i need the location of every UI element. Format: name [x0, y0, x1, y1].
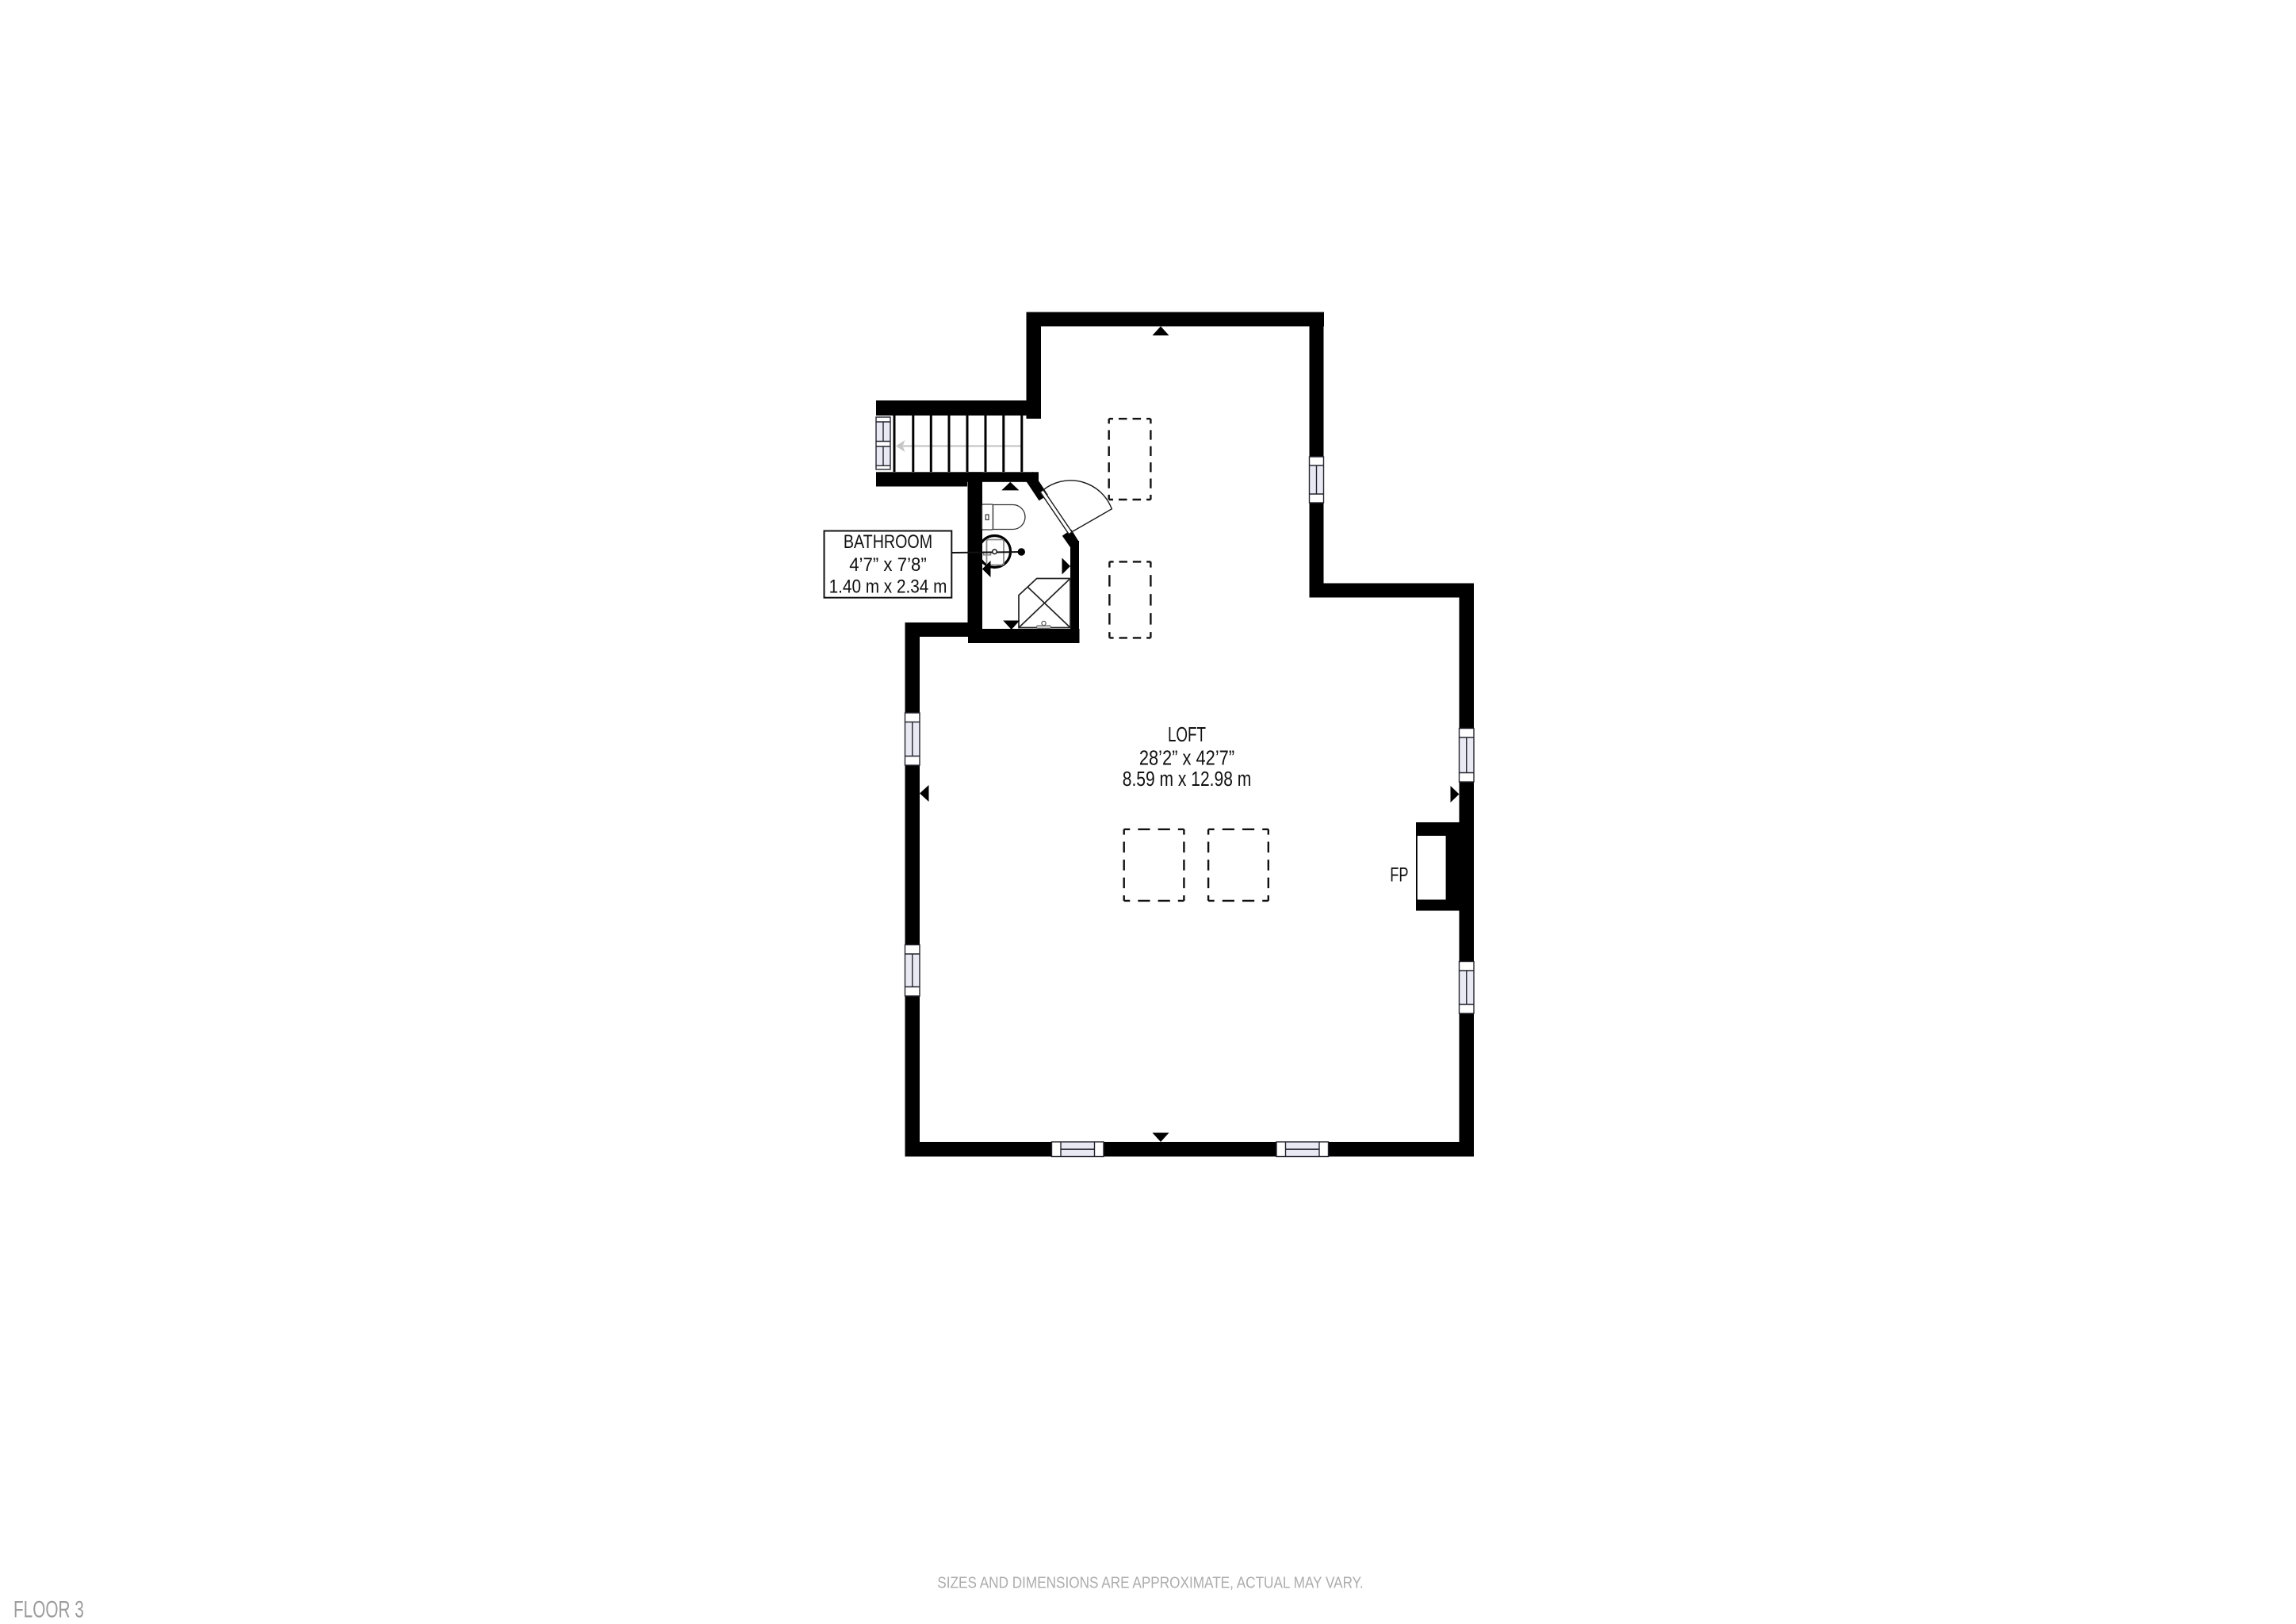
svg-text:FP: FP [1390, 864, 1408, 887]
svg-text:SIZES AND DIMENSIONS ARE APPRO: SIZES AND DIMENSIONS ARE APPROXIMATE, AC… [937, 1574, 1363, 1592]
svg-text:4’7” x 7’8”: 4’7” x 7’8” [849, 554, 927, 576]
svg-text:FLOOR 3: FLOOR 3 [13, 1597, 84, 1623]
svg-text:8.59 m x 12.98 m: 8.59 m x 12.98 m [1123, 768, 1252, 791]
svg-text:28’2” x 42’7”: 28’2” x 42’7” [1139, 748, 1234, 770]
svg-text:BATHROOM: BATHROOM [844, 531, 932, 553]
svg-text:LOFT: LOFT [1168, 724, 1206, 746]
svg-text:1.40 m x 2.34 m: 1.40 m x 2.34 m [829, 576, 947, 598]
